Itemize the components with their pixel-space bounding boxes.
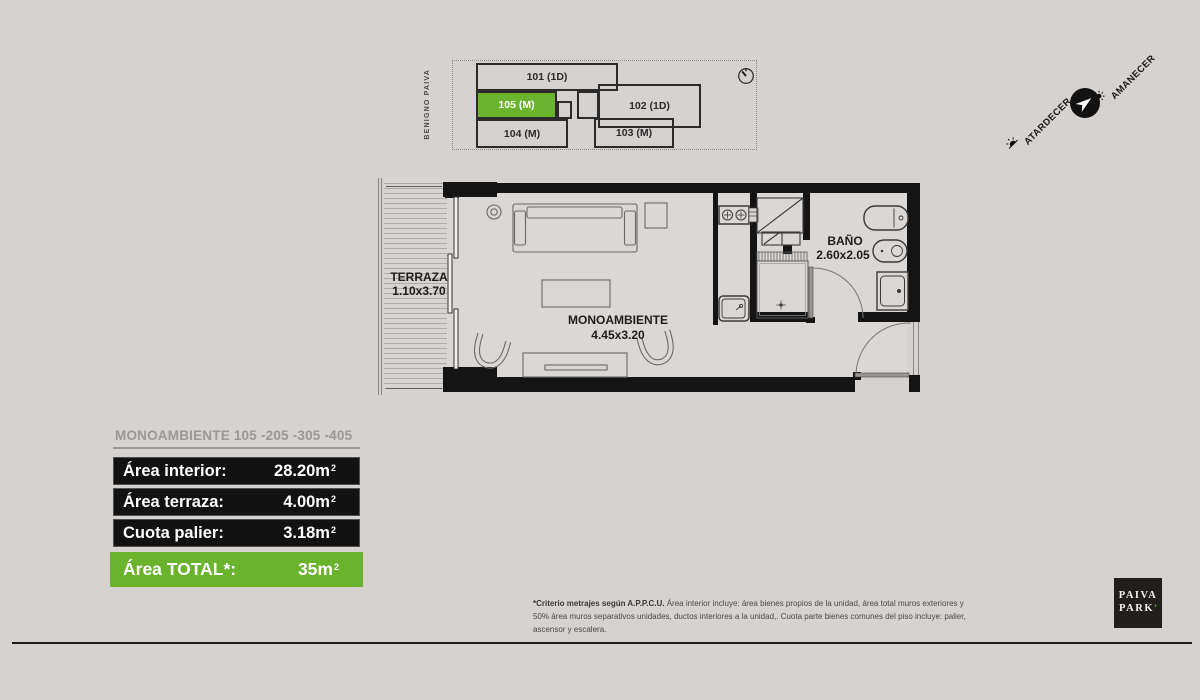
summary-title: MONOAMBIENTE 105 -205 -305 -405 xyxy=(113,428,360,449)
monoambiente-label: MONOAMBIENTE xyxy=(568,313,668,327)
paiva-park-logo: PAIVA PARK’ xyxy=(1114,578,1162,628)
row-area-interior: Área interior: 28.20m2 xyxy=(113,457,360,485)
floor-plan: TERRAZA 1.10x3.70 MONOAMBIENTE 4.45x3.20… xyxy=(375,175,925,400)
logo-line1: PAIVA xyxy=(1119,590,1158,603)
bano-dims: 2.60x2.05 xyxy=(816,248,870,262)
unit-105-label: 105 (M) xyxy=(498,99,534,111)
row-label: Área terraza: xyxy=(123,493,224,512)
row-cuota-palier: Cuota palier: 3.18m2 xyxy=(113,519,360,547)
terraza-label: TERRAZA xyxy=(390,270,448,284)
row-value: 4.00m2 xyxy=(283,493,336,512)
apartment-floor xyxy=(447,193,907,377)
row-label: Área interior: xyxy=(123,462,227,481)
row-label: Cuota palier: xyxy=(123,524,224,543)
logo-line2: PARK’ xyxy=(1119,603,1157,616)
street-label: BENIGNO PAIVA xyxy=(420,60,434,148)
total-value: 35m2 xyxy=(298,559,339,580)
bathroom-vanity xyxy=(877,272,908,310)
sunset-icon xyxy=(1003,134,1022,153)
row-value: 3.18m2 xyxy=(283,524,336,543)
key-plan-unit-104[interactable]: 104 (M) xyxy=(476,119,568,148)
terraza-dims: 1.10x3.70 xyxy=(392,284,446,298)
toilet xyxy=(873,240,907,262)
key-plan-corridor-step xyxy=(557,101,572,119)
sunset-text: ATARDECER xyxy=(1022,96,1074,148)
monoambiente-dims: 4.45x3.20 xyxy=(591,328,645,342)
area-summary-table: MONOAMBIENTE 105 -205 -305 -405 Área int… xyxy=(113,428,360,587)
key-plan-unit-103[interactable]: 103 (M) xyxy=(594,118,674,148)
exterior-edge xyxy=(914,322,919,375)
clock-icon xyxy=(737,67,755,85)
street-label-text: BENIGNO PAIVA xyxy=(424,69,431,140)
bano-label: BAÑO xyxy=(827,233,862,248)
key-plan-unit-101[interactable]: 101 (1D) xyxy=(476,63,618,91)
key-plan-unit-105-highlighted[interactable]: 105 (M) xyxy=(476,91,557,119)
sunrise-label: AMANECER xyxy=(1098,52,1159,113)
unit-103-label: 103 (M) xyxy=(616,127,652,139)
unit-102-label: 102 (1D) xyxy=(629,100,670,112)
bathtub xyxy=(864,206,908,230)
disclaimer-text: *Criterio metrajes según A.P.P.C.U. Área… xyxy=(533,598,971,636)
footer-divider xyxy=(12,642,1192,644)
key-plan-corridor-step xyxy=(577,91,599,119)
logo-green-accent: ’ xyxy=(1154,603,1157,613)
terraza-railing xyxy=(379,178,382,395)
key-plan: 101 (1D) 102 (1D) 103 (M) 104 (M) 105 (M… xyxy=(452,60,757,150)
sunrise-text: AMANECER xyxy=(1109,53,1158,102)
row-area-total: Área TOTAL*: 35m2 xyxy=(110,552,363,587)
total-label: Área TOTAL*: xyxy=(123,559,236,580)
unit-101-label: 101 (1D) xyxy=(527,71,568,83)
disclaimer-bold: *Criterio metrajes según A.P.P.C.U. xyxy=(533,599,664,608)
sunset-label: ATARDECER xyxy=(1009,95,1074,160)
row-area-terraza: Área terraza: 4.00m2 xyxy=(113,488,360,516)
row-value: 28.20m2 xyxy=(274,462,336,481)
unit-104-label: 104 (M) xyxy=(504,128,540,140)
